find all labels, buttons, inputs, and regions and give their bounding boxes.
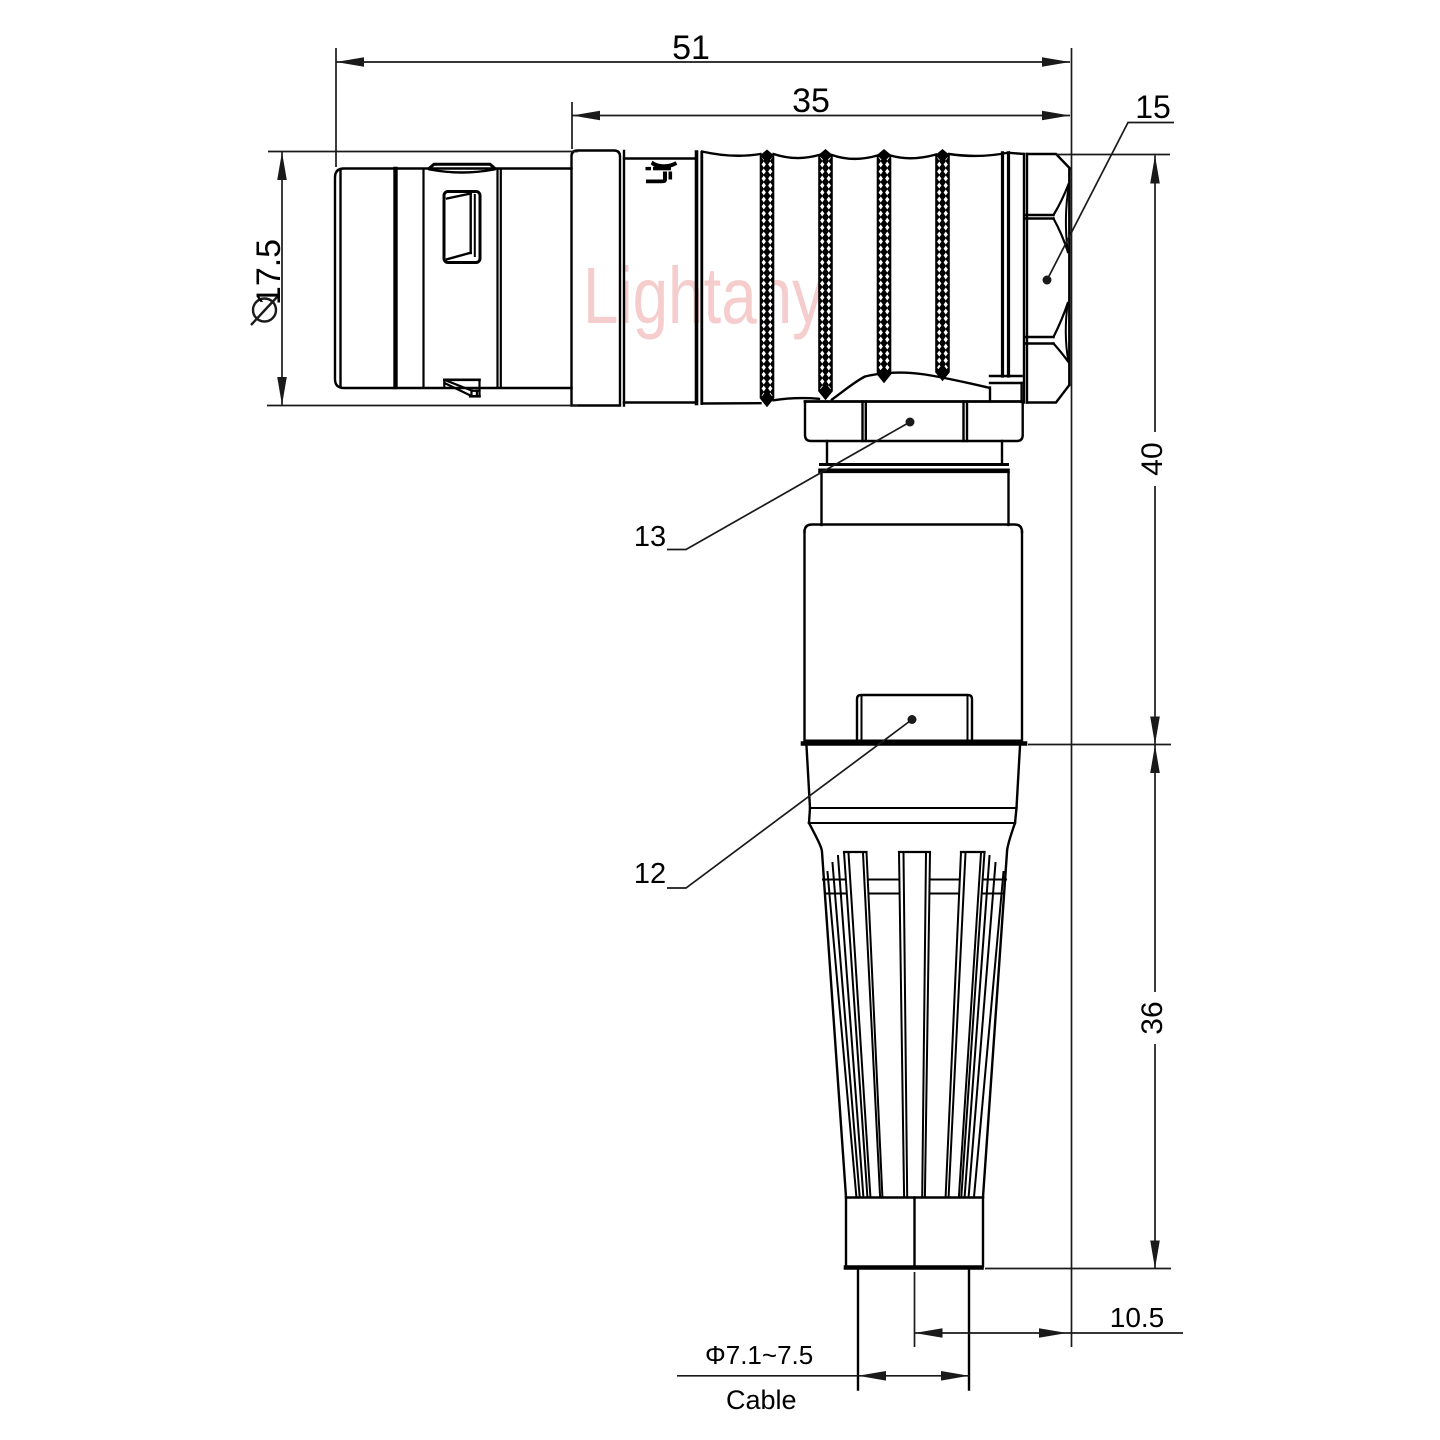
svg-text:17.5: 17.5	[250, 239, 288, 305]
svg-text:35: 35	[792, 82, 830, 120]
svg-text:40: 40	[1136, 442, 1169, 475]
svg-text:Cable: Cable	[726, 1385, 797, 1415]
svg-text:12: 12	[634, 858, 666, 890]
svg-text:10.5: 10.5	[1110, 1302, 1165, 1333]
svg-text:15: 15	[1135, 89, 1171, 125]
svg-text:36: 36	[1136, 1001, 1169, 1034]
svg-text:Φ7.1~7.5: Φ7.1~7.5	[705, 1340, 813, 1370]
svg-text:13: 13	[634, 521, 666, 553]
svg-text:51: 51	[672, 29, 710, 67]
